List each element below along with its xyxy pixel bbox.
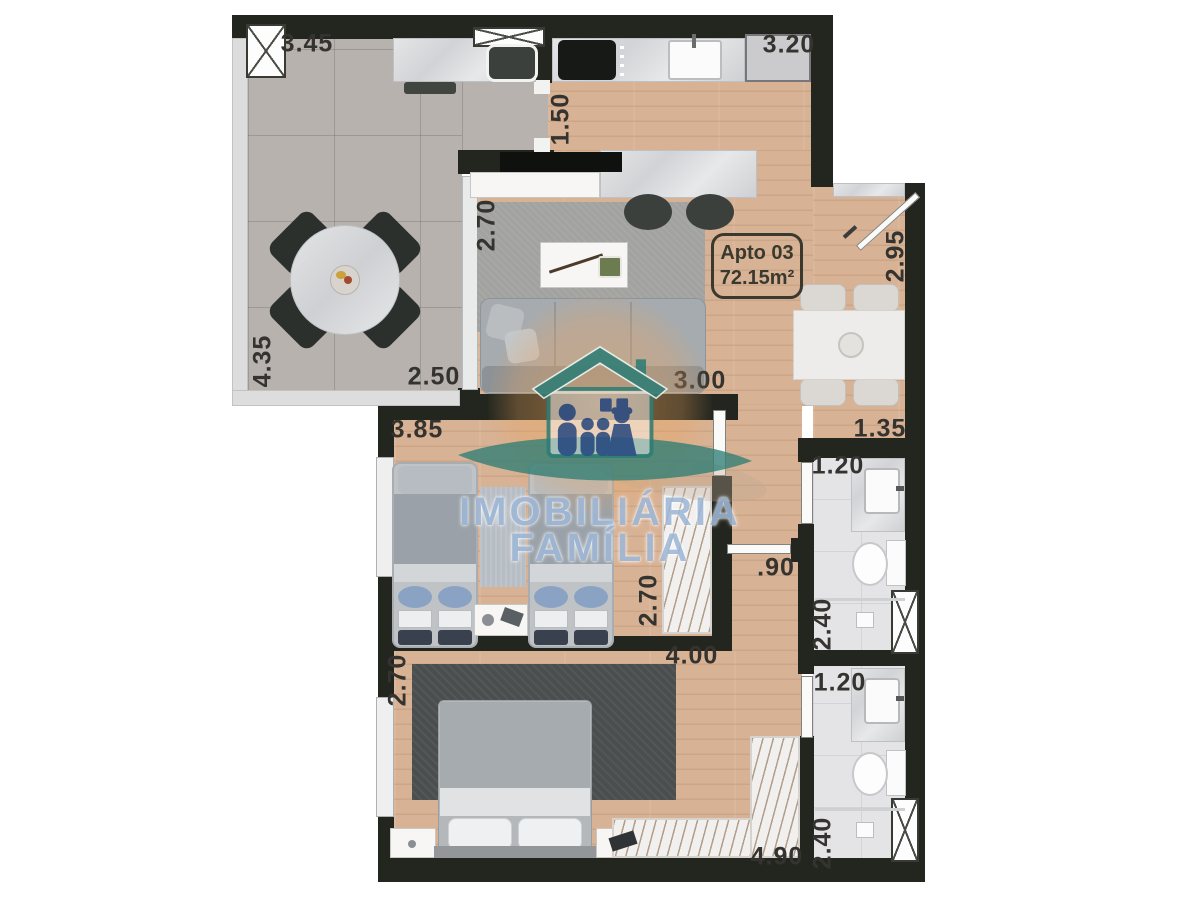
bed-slippers: [574, 630, 608, 645]
unit-number: Apto 03: [720, 241, 793, 266]
bed-slippers: [398, 630, 432, 645]
dining-chair: [853, 378, 899, 406]
sofa-cushion-line: [630, 302, 632, 366]
master-closet-side: [750, 736, 800, 858]
bathroom1-sink: [864, 468, 900, 514]
unit-label-box: Apto 03 72.15m²: [711, 233, 803, 299]
bedroom2-rug: [480, 487, 526, 587]
dimension-label: 1.35: [854, 415, 907, 444]
kitchen-faucet: [692, 34, 696, 48]
double-bed-sheet: [440, 788, 590, 816]
tv: [500, 152, 622, 172]
dimension-label: 4.90: [751, 843, 804, 872]
wall-bottom: [378, 858, 925, 882]
dining-chair: [800, 284, 846, 312]
bed-towel: [534, 610, 568, 628]
dimension-label: 2.70: [635, 574, 664, 627]
bed-sheet: [394, 564, 476, 582]
dining-chair: [800, 378, 846, 406]
bathroom2-faucet: [896, 696, 904, 701]
dimension-label: 1.20: [812, 452, 865, 481]
bathroom2-shower-drain: [856, 822, 874, 838]
headboard: [434, 846, 596, 858]
hallway-floor: [722, 405, 802, 651]
bed-slippers: [438, 630, 472, 645]
bed-pillow: [534, 466, 608, 494]
dimension-label: .90: [757, 554, 795, 583]
sofa-cushion-line: [554, 302, 556, 366]
terrace-railing-left: [232, 38, 248, 394]
bedroom2-door: [713, 410, 726, 476]
sofa-pillow: [503, 327, 540, 364]
bar-stool: [624, 194, 672, 230]
bathroom2-toilet-bowl: [852, 752, 888, 796]
dimension-label: 1.50: [547, 93, 576, 146]
bathroom1-shower-drain: [856, 612, 874, 628]
bed-blanket: [530, 494, 612, 564]
bathroom1-toilet-tank: [886, 540, 906, 586]
master-window: [376, 697, 394, 817]
coffee-table-tray: [598, 256, 622, 278]
laundry-sink: [486, 44, 538, 82]
dimension-label: 2.70: [384, 654, 413, 707]
tv-console: [470, 172, 600, 198]
wall-right: [905, 183, 925, 882]
dimension-label: 2.95: [882, 230, 911, 283]
dining-chair: [853, 284, 899, 312]
cooktop: [558, 40, 616, 80]
dimension-label: 2.70: [473, 199, 502, 252]
dimension-label: 2.40: [809, 817, 838, 870]
kitchen-floor: [548, 80, 813, 152]
cooktop-knobs: [620, 44, 624, 76]
dimension-label: 2.40: [809, 598, 838, 651]
bathroom1-toilet-bowl: [852, 542, 888, 586]
bathroom2-toilet-tank: [886, 750, 906, 796]
dimension-label: 4.00: [666, 642, 719, 671]
entry-threshold: [833, 183, 905, 197]
terrace-railing-bottom: [232, 390, 460, 406]
nightstand-decor: [482, 614, 494, 626]
dimension-label: 3.20: [763, 31, 816, 60]
dimension-label: 1.20: [814, 669, 867, 698]
dimension-label: 3.45: [281, 30, 334, 59]
sofa-back: [482, 366, 704, 392]
bathroom2-shower-line: [815, 808, 905, 811]
bed-cushion-blue: [574, 586, 608, 608]
bathroom1-faucet: [896, 486, 904, 491]
bed-towel: [574, 610, 608, 628]
floor-grill: [404, 82, 456, 94]
bathroom2-door: [801, 676, 813, 738]
floor-plan: Apto 03 72.15m² 3.453.201.502.702.954.35…: [0, 0, 1200, 900]
bed-towel: [438, 610, 472, 628]
bed-pillow: [398, 466, 472, 494]
wall-service-divider: [536, 15, 552, 83]
double-bed-blanket: [440, 702, 590, 788]
bar-stool: [686, 194, 734, 230]
dimension-label: 3.85: [391, 416, 444, 445]
dimension-label: 3.00: [674, 367, 727, 396]
bed-cushion-blue: [398, 586, 432, 608]
bedroom2-closet: [662, 486, 712, 634]
dimension-label: 2.50: [408, 363, 461, 392]
bed-towel: [398, 610, 432, 628]
unit-area: 72.15m²: [720, 266, 795, 291]
bathroom2-sink: [864, 678, 900, 724]
bed-cushion-blue: [534, 586, 568, 608]
dimension-label: 4.35: [249, 335, 278, 388]
nightstand-knob: [408, 840, 416, 848]
breakfast-bar: [600, 150, 757, 198]
fruit: [344, 276, 352, 284]
bed-cushion-blue: [438, 586, 472, 608]
dining-centerpiece: [838, 332, 864, 358]
bed-slippers: [534, 630, 568, 645]
master-suite-door: [727, 544, 791, 554]
wall-bedroom2-right: [712, 476, 732, 651]
bed-sheet: [530, 564, 612, 582]
bed-blanket: [394, 494, 476, 564]
